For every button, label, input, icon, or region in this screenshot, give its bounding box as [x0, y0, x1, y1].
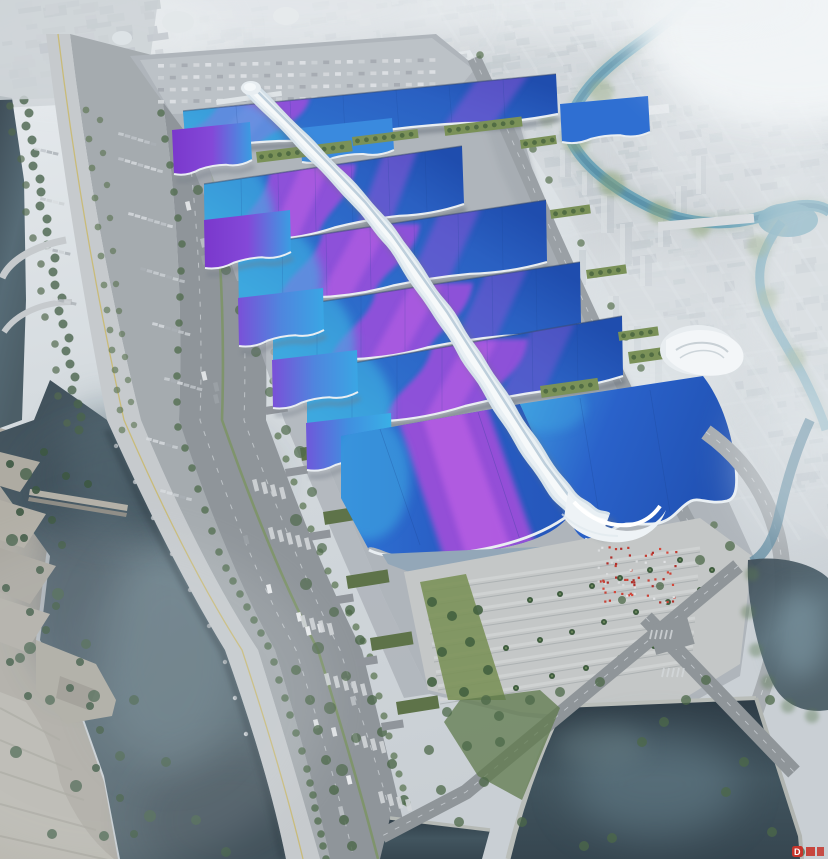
- svg-text:D: D: [794, 847, 801, 857]
